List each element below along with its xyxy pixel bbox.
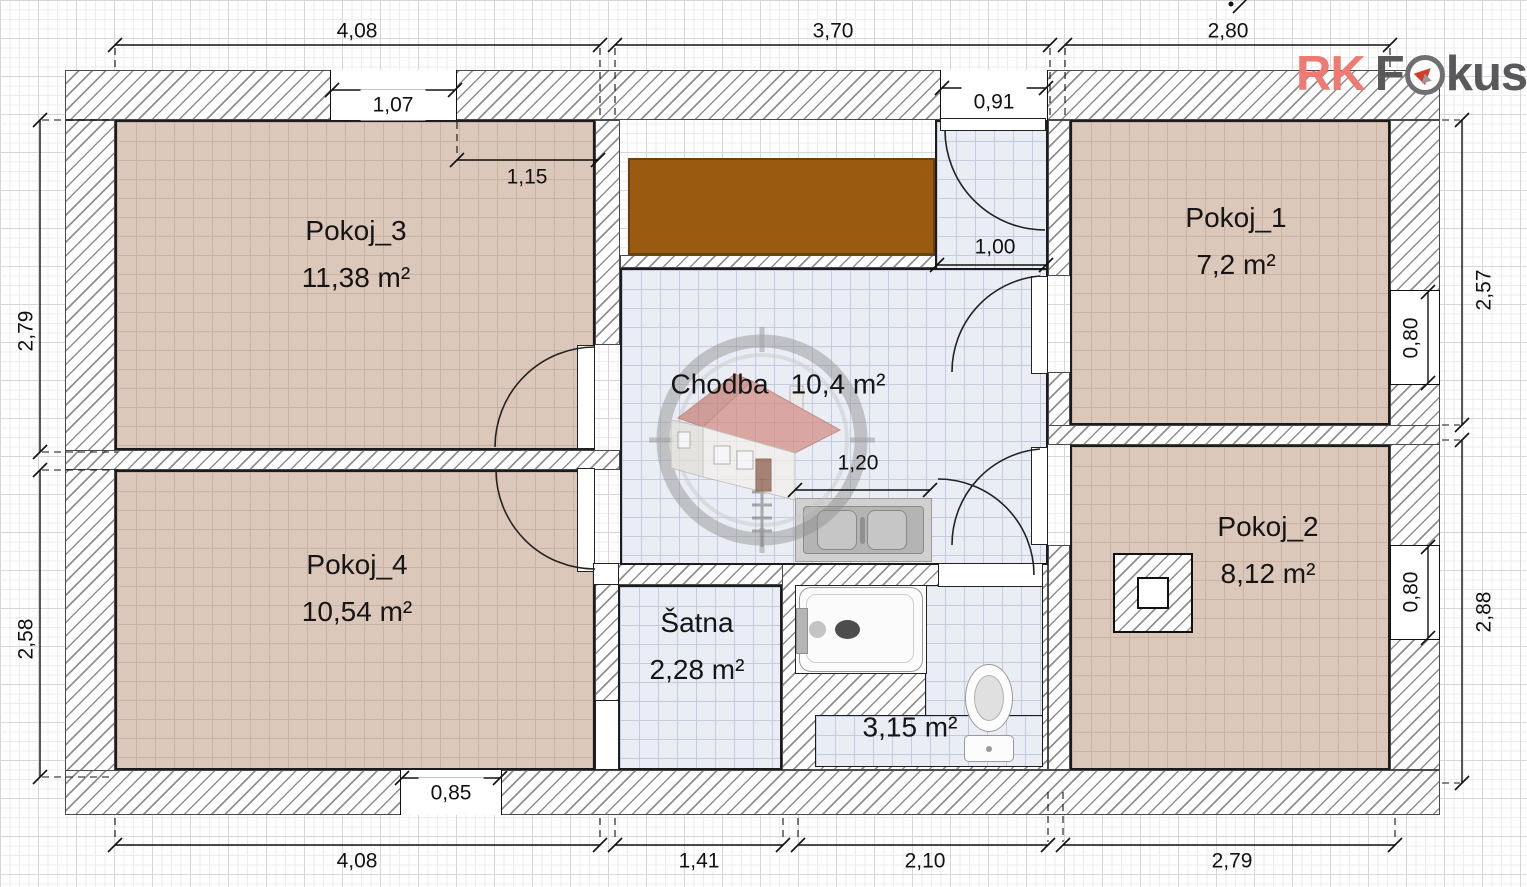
label-bathroom-area: 3,15 m² — [863, 703, 958, 750]
wall-mid-left-upper — [595, 120, 620, 345]
vanity-tap — [860, 517, 865, 544]
dim-top-2: 3,70 — [813, 21, 854, 42]
door-leaf-entry — [940, 118, 1046, 131]
door-leaf-pokoj4 — [577, 468, 595, 572]
room-area: 3,15 m² — [863, 703, 958, 750]
bathtub-knob — [809, 621, 826, 638]
bathtub-faucet — [796, 608, 808, 654]
floorplan-canvas: 4,08 3,70 2,80 4,08 1,41 2,10 2,79 2,79 … — [0, 0, 1527, 887]
room-name: Pokoj_4 — [302, 541, 413, 588]
wall-divider-p1-p2 — [1048, 425, 1440, 445]
room-name: Chodba — [670, 360, 768, 407]
room-name: Šatna — [650, 599, 745, 646]
wall-satna-top — [595, 563, 800, 585]
dim-right-2: 2,88 — [1474, 592, 1495, 633]
wall-nook-strip — [620, 255, 938, 268]
wall-mid-right-upper — [1048, 120, 1070, 276]
chimney-flue — [1137, 577, 1169, 609]
dim-left-2: 2,58 — [16, 619, 37, 660]
dim-bottom-2: 1,41 — [679, 851, 720, 872]
dim-nook: 1,00 — [975, 237, 1016, 258]
dim-top-1: 4,08 — [337, 21, 378, 42]
dim-vanity: 1,20 — [838, 453, 879, 474]
room-name: Pokoj_2 — [1217, 503, 1318, 550]
room-area: 10,4 m² — [791, 360, 886, 407]
dim-window-r1: 0,80 — [1401, 318, 1422, 359]
dim-bottom-4: 2,79 — [1212, 851, 1253, 872]
toilet-button — [986, 746, 992, 752]
wardrobe — [628, 158, 935, 255]
door-leaf-pokoj1 — [1031, 276, 1048, 374]
room-area: 8,12 m² — [1217, 550, 1318, 597]
room-area: 10,54 m² — [302, 588, 413, 635]
bathtub-drain — [835, 620, 860, 639]
logo-text-f: F — [1375, 50, 1404, 99]
dim-window-r2: 0,80 — [1401, 572, 1422, 613]
label-chodba: Chodba 10,4 m² — [670, 360, 885, 407]
room-area: 2,28 m² — [650, 646, 745, 693]
wall-top — [65, 70, 1440, 120]
logo-text-rk: RK — [1296, 50, 1365, 99]
label-satna: Šatna 2,28 m² — [650, 599, 745, 693]
dim-right-1: 2,57 — [1474, 270, 1495, 311]
satna-threshold — [593, 563, 619, 585]
door-leaf-pokoj3 — [577, 345, 595, 449]
room-area: 11,38 m² — [302, 254, 410, 301]
dim-bottom-1: 4,08 — [337, 851, 378, 872]
label-pokoj-1: Pokoj_1 7,2 m² — [1185, 194, 1286, 288]
wall-bottom — [65, 770, 1440, 815]
logo-text-kus: kus — [1446, 50, 1527, 99]
bathroom-door-threshold — [938, 563, 1043, 587]
cropped-text-fragment — [1229, 2, 1234, 7]
wall-right — [1390, 120, 1440, 770]
room-area: 7,2 m² — [1185, 241, 1286, 288]
door-leaf-pokoj2 — [1031, 447, 1048, 545]
chimney — [1113, 553, 1193, 633]
wall-mid-right-lower — [1048, 545, 1070, 770]
dim-window-top: 1,07 — [361, 90, 426, 121]
label-pokoj-4: Pokoj_4 10,54 m² — [302, 541, 413, 635]
label-pokoj-3: Pokoj_3 11,38 m² — [302, 207, 410, 301]
room-name: Pokoj_3 — [302, 207, 410, 254]
wall-divider-p3-p4 — [65, 450, 620, 470]
toilet-bowl-inner — [974, 675, 1004, 721]
dim-left-1: 2,79 — [16, 311, 37, 352]
dim-bottom-3: 2,10 — [905, 851, 946, 872]
bathtub — [799, 587, 923, 672]
dim-entry: 0,91 — [962, 87, 1027, 118]
vanity-sink — [795, 498, 932, 562]
dim-inner-p3: 1,15 — [507, 167, 548, 188]
compass-icon — [1405, 55, 1445, 95]
vanity-basin-right — [867, 510, 907, 550]
room-name: Pokoj_1 — [1185, 194, 1286, 241]
dim-door-p4: 0,85 — [419, 778, 484, 809]
label-pokoj-2: Pokoj_2 8,12 m² — [1217, 503, 1318, 597]
vanity-basin-left — [817, 510, 857, 550]
wall-gap-lower — [595, 700, 619, 770]
toilet — [963, 664, 1015, 764]
rk-fokus-logo: RKFkus — [1296, 50, 1527, 99]
dim-top-3: 2,80 — [1208, 21, 1249, 42]
